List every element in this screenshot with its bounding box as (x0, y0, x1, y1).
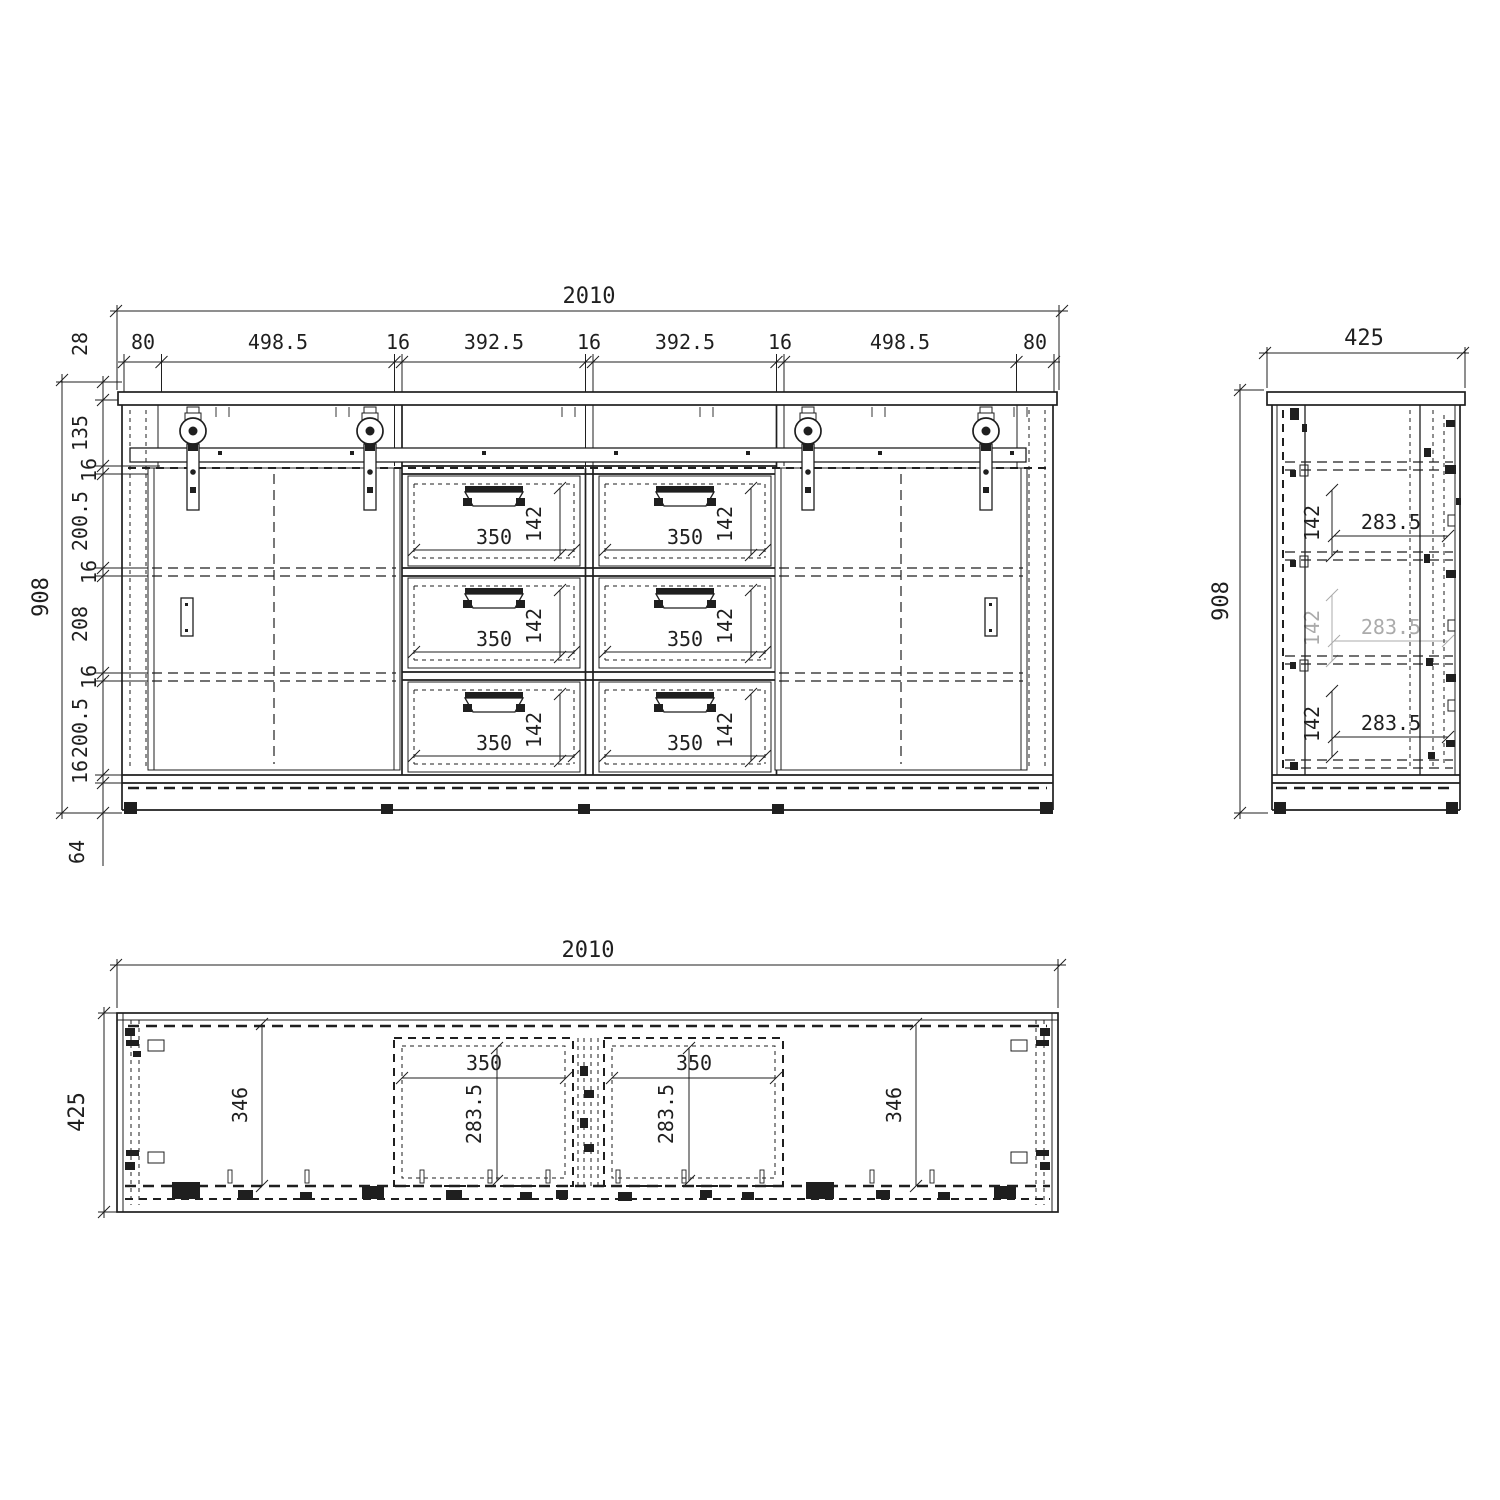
dim-front-chain-8: 80 (1023, 330, 1047, 354)
dim-front-chain-1: 498.5 (248, 330, 308, 354)
handle-screw-icon (989, 629, 992, 632)
dim-front-chain-6: 16 (768, 330, 792, 354)
dim-front-chain-5: 392.5 (655, 330, 715, 354)
dim-side-row3-height: 142 (1300, 706, 1324, 742)
plan-wall-hidden-edges (131, 1020, 1044, 1205)
rail-screw-icon (482, 451, 486, 455)
dim-drawer-height: 142 (522, 506, 546, 542)
dim-plan-overall-width: 2010 (562, 938, 615, 963)
side-top-panel (1267, 392, 1465, 405)
foot-icon (578, 804, 590, 814)
foot-icon (772, 804, 784, 814)
technical-drawing-sideboard: 2010 80 498.5 16 392.5 16 392.5 16 498.5… (0, 0, 1500, 1500)
rail-screw-icon (746, 451, 750, 455)
drawer-pull-icon (463, 588, 525, 608)
dim-front-hchain-6: 16 (77, 665, 101, 689)
top-panel (118, 392, 1057, 405)
rail-screw-icon (614, 451, 618, 455)
drawer-pull-icon (463, 692, 525, 712)
dim-drawer-width: 350 (476, 525, 512, 549)
dim-front-chain-2: 16 (386, 330, 410, 354)
side-view: 425 908 283.5 283.5 283.5 142 142 142 (1209, 326, 1469, 819)
foot-icon (1446, 802, 1458, 814)
dim-front-overall-width: 2010 (563, 284, 616, 309)
drawing-canvas: 2010 80 498.5 16 392.5 16 392.5 16 498.5… (0, 0, 1500, 1500)
dim-plan-drawer-depth-1: 283.5 (654, 1084, 678, 1144)
dim-front-hchain-8: 16 (68, 760, 92, 784)
dim-drawer-width: 350 (476, 627, 512, 651)
dim-front-hchain-3: 200.5 (68, 491, 92, 551)
dim-drawer-width: 350 (667, 525, 703, 549)
dim-plan-overall-depth: 425 (65, 1092, 90, 1132)
dim-drawer-height: 142 (522, 608, 546, 644)
dim-side-row1-depth: 283.5 (1361, 510, 1421, 534)
dim-front-hchain-5: 208 (68, 606, 92, 642)
dim-drawer-height: 142 (713, 506, 737, 542)
rail-screw-icon (1010, 451, 1014, 455)
side-dim-ticks (1234, 347, 1469, 819)
dim-drawer-width: 350 (667, 731, 703, 755)
sliding-rail (130, 448, 1026, 462)
dim-front-chain-3: 392.5 (464, 330, 524, 354)
dim-plan-drawer-width-1: 350 (676, 1051, 712, 1075)
side-dim-lines (1234, 347, 1469, 819)
plan-wall-faces (117, 1013, 1058, 1212)
dim-front-overall-height: 908 (29, 577, 54, 617)
dim-plan-right-depth: 346 (882, 1087, 906, 1123)
drawer-pull-icon (654, 486, 716, 506)
dim-drawer-height: 142 (713, 712, 737, 748)
plan-partition-hardware (580, 1066, 594, 1152)
plan-view: 2010 425 346 346 350 350 283.5 283.5 (65, 938, 1066, 1218)
drawer-pull-icon (463, 486, 525, 506)
dim-side-row2-depth: 283.5 (1361, 615, 1421, 639)
drawer-pull-icon (654, 588, 716, 608)
plan-outline (117, 1013, 1058, 1212)
rail-screw-icon (878, 451, 882, 455)
front-view: 2010 80 498.5 16 392.5 16 392.5 16 498.5… (29, 284, 1068, 866)
handle-screw-icon (989, 603, 992, 606)
handle-screw-icon (185, 603, 188, 606)
foot-icon (124, 802, 137, 814)
dim-front-chain-7: 498.5 (870, 330, 930, 354)
rail-screw-icon (350, 451, 354, 455)
plan-back-panel-dash (125, 1026, 1050, 1186)
dim-drawer-width: 350 (476, 731, 512, 755)
dim-front-chain-0: 80 (131, 330, 155, 354)
dim-side-row3-depth: 283.5 (1361, 711, 1421, 735)
foot-icon (1274, 802, 1286, 814)
plan-center-partition (578, 1038, 598, 1186)
dim-drawer-width: 350 (667, 627, 703, 651)
dim-side-row1-height: 142 (1300, 505, 1324, 541)
dim-front-plinth-height: 64 (65, 840, 89, 864)
dim-drawer-height: 142 (522, 712, 546, 748)
dim-plan-drawer-depth-0: 283.5 (462, 1084, 486, 1144)
foot-icon (381, 804, 393, 814)
handle-screw-icon (185, 629, 188, 632)
dim-front-hchain-7: 200.5 (68, 698, 92, 758)
dim-plan-left-depth: 346 (228, 1087, 252, 1123)
dim-front-hchain-4: 16 (77, 560, 101, 584)
dim-side-row2-height: 142 (1300, 610, 1324, 646)
dim-drawer-height: 142 (713, 608, 737, 644)
drawer-fronts: 350 350 350 350 350 350 142 142 142 142 … (408, 476, 771, 772)
dim-side-overall-depth: 425 (1344, 326, 1384, 351)
dim-plan-drawer-width-0: 350 (466, 1051, 502, 1075)
dim-side-overall-height: 908 (1209, 581, 1234, 621)
rail-screw-icon (218, 451, 222, 455)
dim-front-hchain-1: 135 (68, 415, 92, 451)
dim-front-chain-4: 16 (577, 330, 601, 354)
dim-front-hchain-2: 16 (77, 458, 101, 482)
hanger-bolt-marks (216, 407, 1027, 417)
foot-icon (1040, 802, 1053, 814)
dim-front-hchain-0: 28 (68, 332, 92, 356)
drawer-pull-icon (654, 692, 716, 712)
